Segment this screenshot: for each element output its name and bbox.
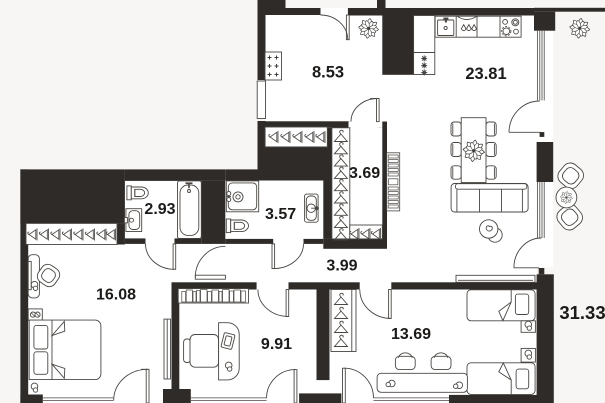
svg-text:3.57: 3.57 <box>265 206 296 223</box>
svg-text:3.99: 3.99 <box>326 258 357 275</box>
svg-text:9.91: 9.91 <box>261 336 292 353</box>
svg-text:2.93: 2.93 <box>144 201 175 218</box>
svg-text:3.69: 3.69 <box>349 165 380 182</box>
svg-text:8.53: 8.53 <box>312 64 344 82</box>
svg-text:13.69: 13.69 <box>391 326 431 343</box>
svg-text:16.08: 16.08 <box>96 287 136 304</box>
svg-text:31.33: 31.33 <box>559 302 605 323</box>
svg-text:23.81: 23.81 <box>465 65 506 83</box>
